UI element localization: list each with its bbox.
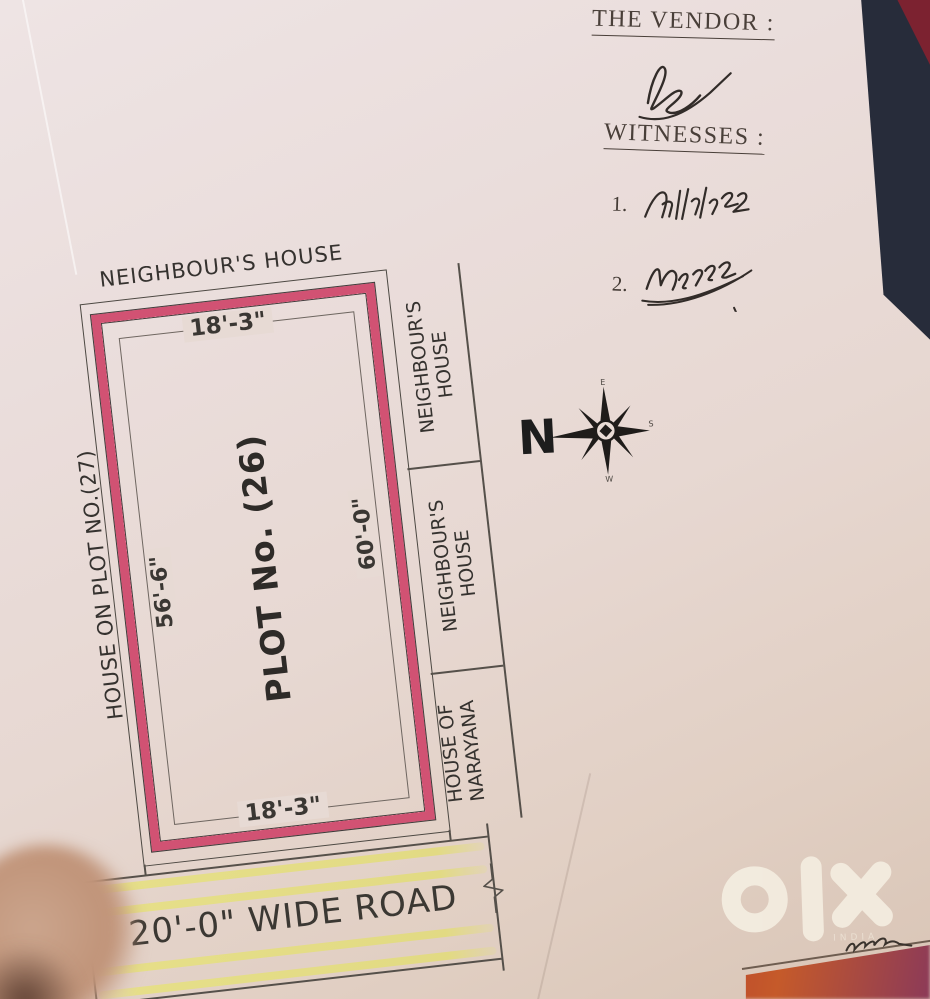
compass: N E S W [509,376,655,493]
vendor-section: THE VENDOR : [592,6,776,41]
olx-letter-l [800,856,824,942]
vendor-signature [617,48,749,131]
compass-rose-icon: E S W [547,376,656,485]
olx-letter-x [826,859,896,929]
photographed-site-plan: THE VENDOR : WITNESSES : 1. 2. N [0,0,930,999]
witness-1-signature [639,176,756,232]
vendor-heading: THE VENDOR : [592,6,776,41]
compass-tip-s: S [648,419,654,428]
witness-2-signature [638,247,760,313]
witnesses-section: WITNESSES : 1. 2. [604,119,766,155]
compass-tip-e: E [600,378,606,387]
compass-tip-w: W [605,474,613,483]
witness-2-number: 2. [611,272,628,298]
label-neighbour-right-1: NEIGHBOUR'S HOUSE [399,269,468,463]
label-neighbour-right-2: NEIGHBOUR'S HOUSE [422,467,491,661]
witness-1-number: 1. [611,192,628,218]
witnesses-heading: WITNESSES : [604,119,766,155]
road-break-symbol [481,862,507,914]
olx-letter-o [721,865,789,933]
